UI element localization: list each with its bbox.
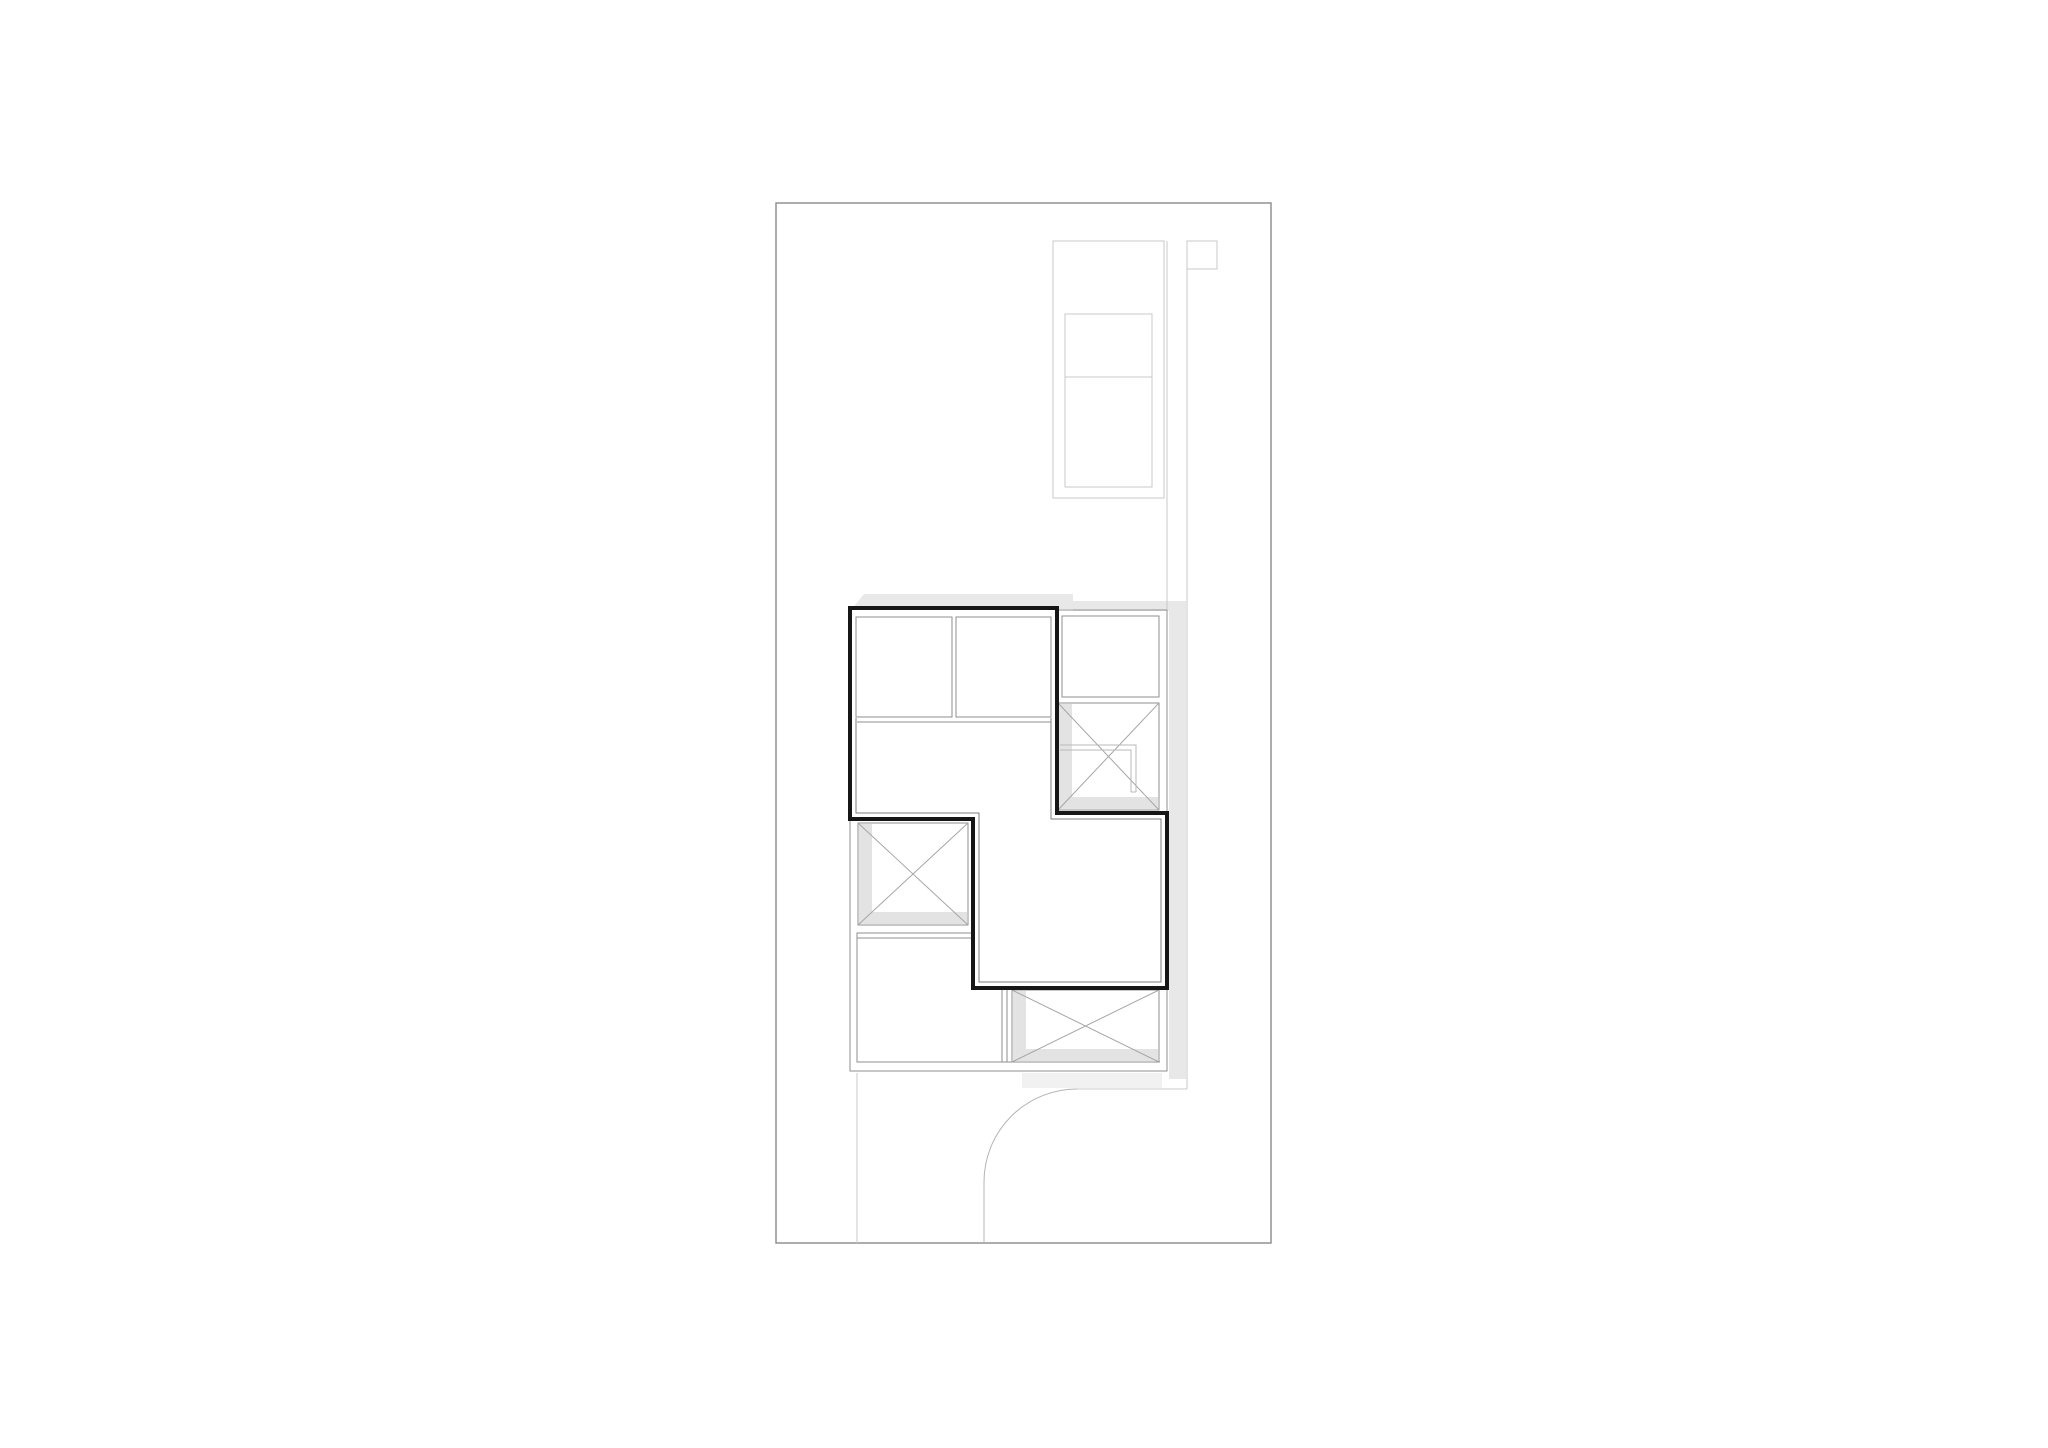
skylight-w-inner-shadow-left — [859, 824, 872, 924]
site-plan-page — [0, 0, 2048, 1448]
room-nw-a — [856, 617, 952, 717]
skylight-ne-inner-shadow-bottom — [1059, 797, 1158, 809]
skylight-w-inner-shadow-bottom — [859, 912, 967, 924]
garage-inner-bay — [1065, 314, 1152, 487]
skylight-ne-inner-shadow-left — [1059, 704, 1072, 809]
driveway-arc — [984, 1089, 1077, 1182]
garage-outline — [1053, 241, 1164, 498]
entry-marker-square — [1187, 241, 1217, 269]
shadow-bottom-right — [1022, 1073, 1162, 1088]
shadow-right-band — [1169, 601, 1186, 1079]
room-ne-veranda — [1062, 616, 1159, 697]
site-plan-svg — [0, 0, 2048, 1448]
room-nw-b — [956, 617, 1051, 717]
